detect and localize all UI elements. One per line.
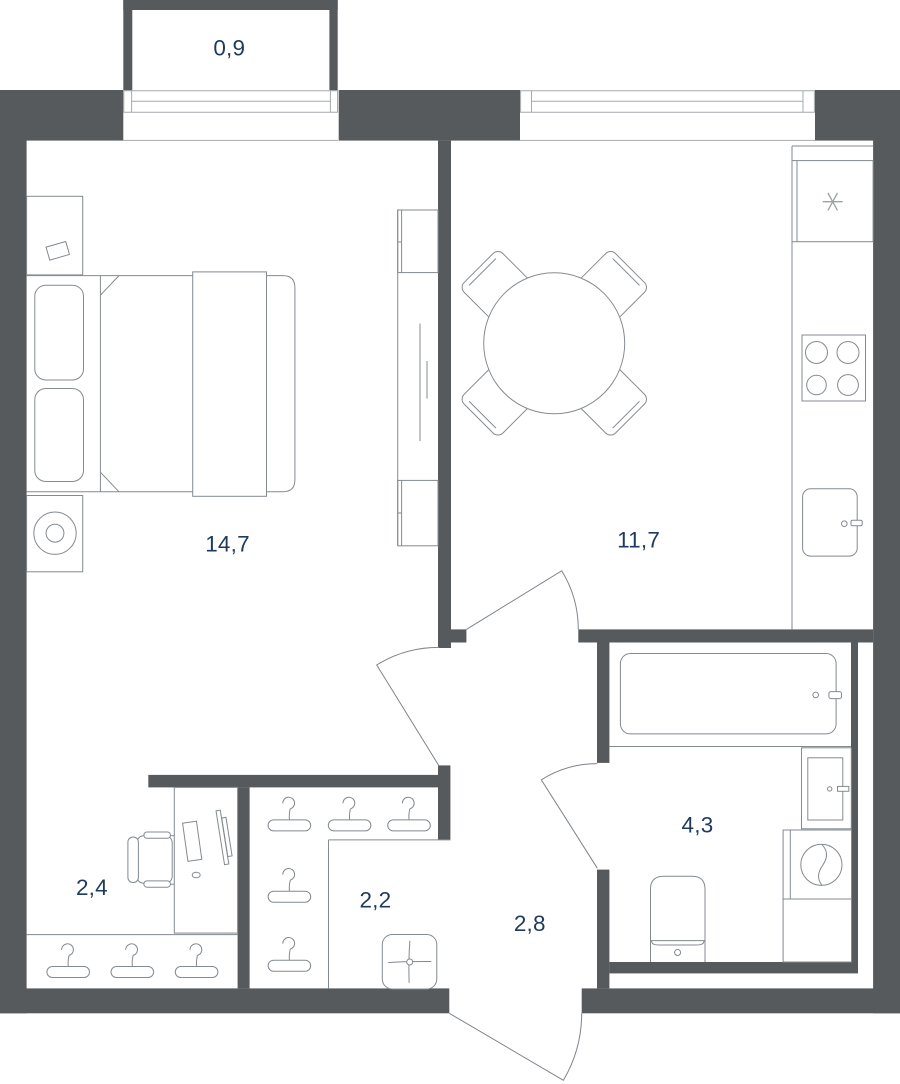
svg-text:2,4: 2,4 — [76, 875, 108, 900]
svg-text:2,8: 2,8 — [514, 911, 546, 936]
svg-text:4,3: 4,3 — [682, 812, 714, 837]
svg-text:14,7: 14,7 — [205, 532, 250, 557]
svg-text:11,7: 11,7 — [617, 527, 660, 552]
svg-text:0,9: 0,9 — [213, 36, 245, 61]
svg-text:2,2: 2,2 — [359, 887, 391, 912]
